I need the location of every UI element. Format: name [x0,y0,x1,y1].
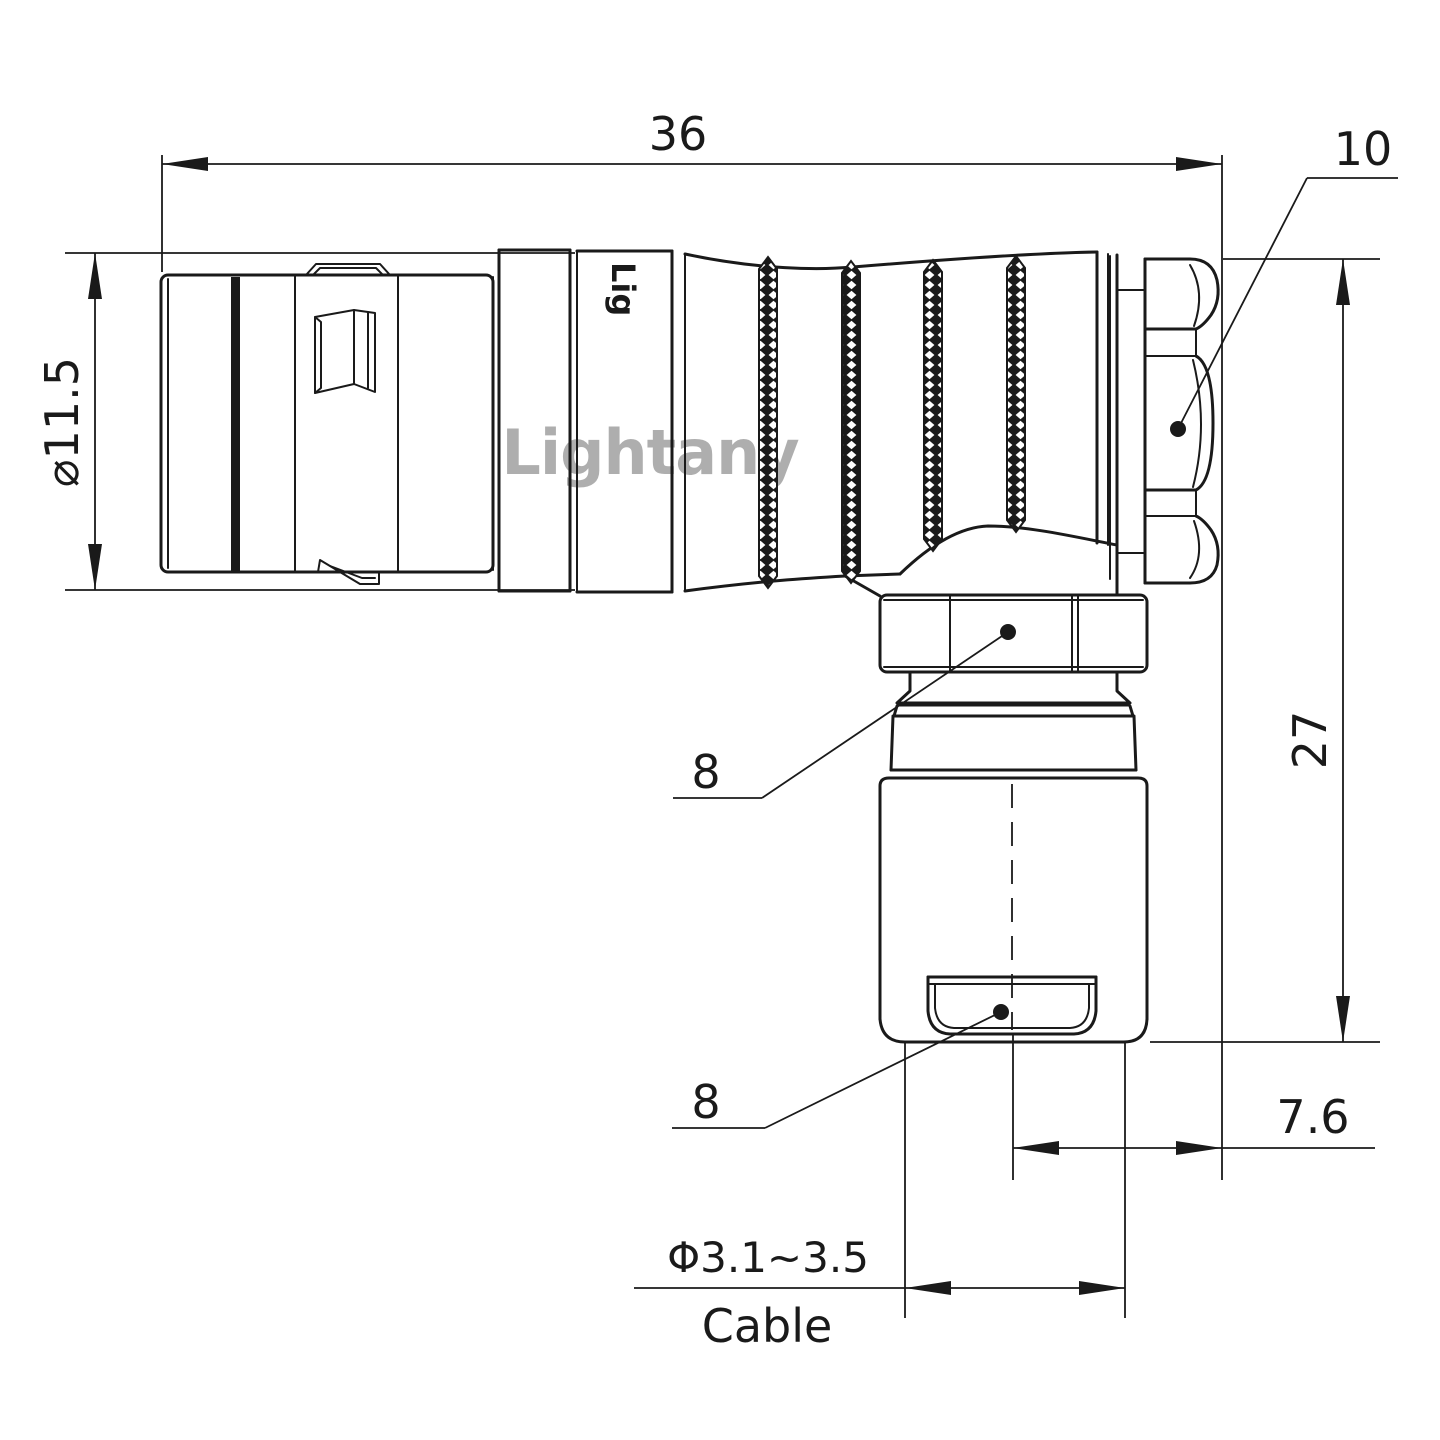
dim-11-5-label: ⌀11.5 [35,357,89,487]
dim-10-label: 10 [1334,122,1393,176]
technical-drawing-page: Lightany Lig [0,0,1440,1440]
cable-label: Cable [702,1299,833,1353]
drawing-background [0,0,1440,1440]
dim-7-6-label: 7.6 [1276,1090,1349,1144]
dim-36-label: 36 [649,107,708,161]
dim-8-upper-label: 8 [691,745,720,799]
barrel-engraving-text: Lig [604,262,642,316]
dim-cable-diameter-label: Φ3.1~3.5 [667,1233,869,1282]
dim-8-lower-label: 8 [691,1075,720,1129]
dim-27-label: 27 [1283,711,1337,770]
coupling-black-band [231,277,240,571]
watermark-text: Lightany [501,416,799,489]
connector-technical-drawing: Lightany Lig [0,0,1440,1440]
